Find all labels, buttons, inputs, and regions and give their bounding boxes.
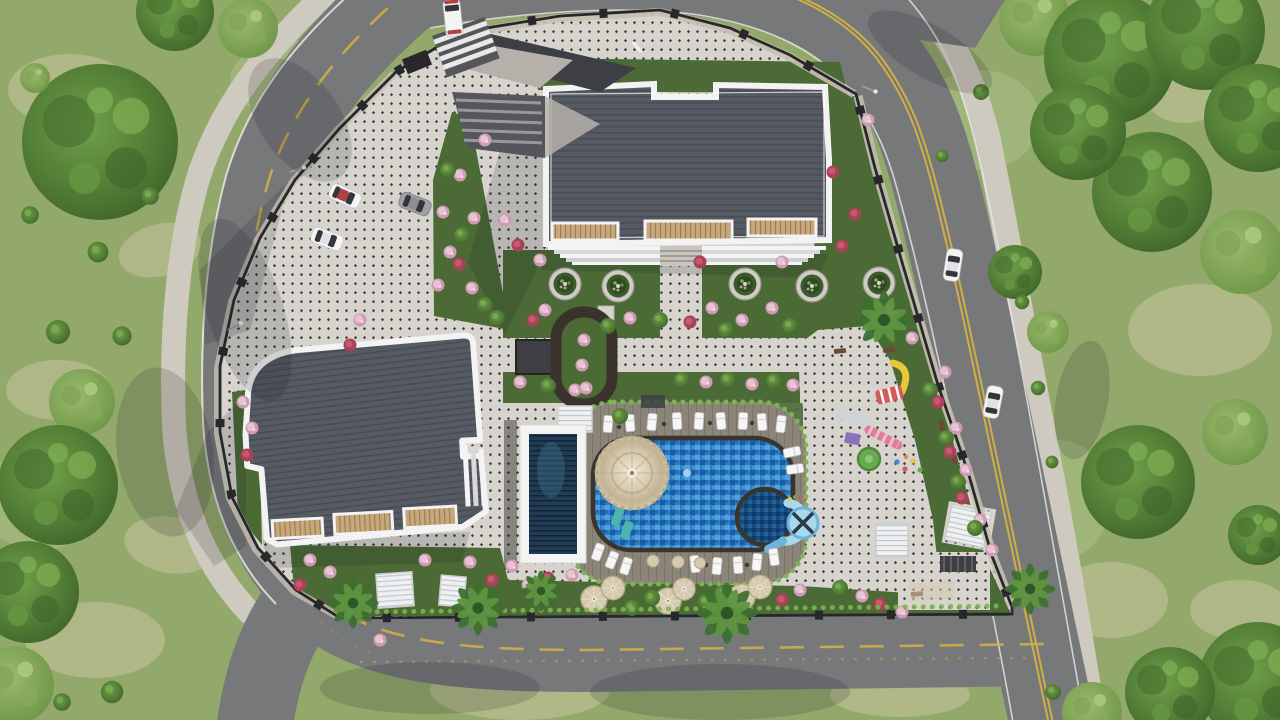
deck-mat <box>641 395 665 408</box>
entrance-van <box>443 0 464 37</box>
tree-planter <box>602 270 634 302</box>
fountain-parasol <box>595 436 669 510</box>
lap-pool <box>504 420 586 570</box>
west-terraces <box>462 444 486 507</box>
seating-mat <box>909 580 954 601</box>
flower-bush-red <box>527 314 540 327</box>
tree-planter <box>729 268 761 300</box>
site-plan-svg <box>0 0 1280 720</box>
palm-tree <box>855 291 913 349</box>
pergola <box>376 572 414 608</box>
tree-planter <box>863 267 895 299</box>
flower-bush <box>576 359 589 372</box>
palm-tree <box>521 571 562 612</box>
flower-bush <box>578 334 591 347</box>
pool-float <box>683 469 691 477</box>
flower-bush <box>580 382 593 395</box>
palm-tree <box>328 578 379 629</box>
palm-tree <box>696 582 757 643</box>
spa-pool <box>737 489 793 545</box>
palm-tree <box>451 581 505 635</box>
palm-tree <box>1005 564 1056 615</box>
tree-planter <box>796 270 828 302</box>
pool-area <box>558 395 818 584</box>
lap-pool-walkway <box>504 420 517 570</box>
aerial-site-render <box>0 0 1280 720</box>
building-north-block <box>546 84 829 266</box>
tree-planter <box>549 268 581 300</box>
north-balconies <box>552 219 816 240</box>
pergola <box>876 524 908 557</box>
